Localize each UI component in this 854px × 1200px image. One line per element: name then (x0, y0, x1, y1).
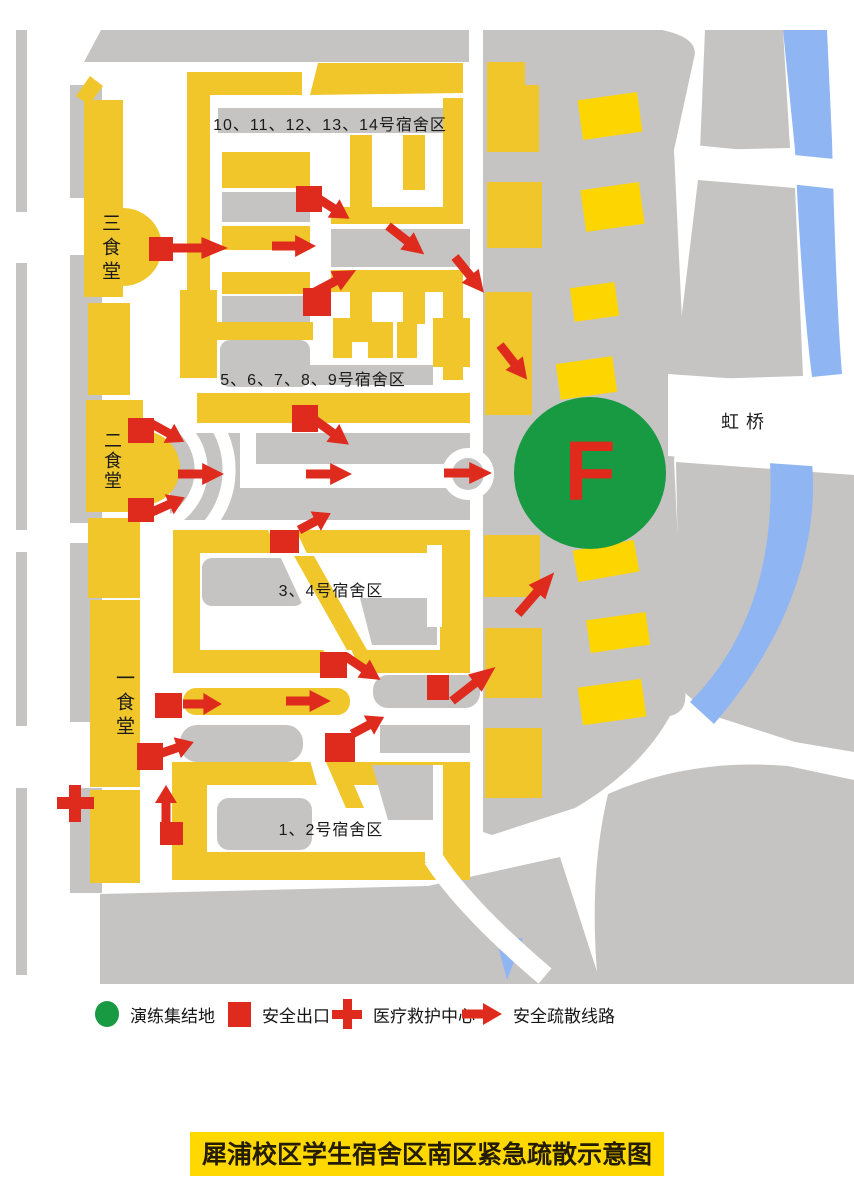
evacuation-arrow-icon (462, 1003, 502, 1025)
medical-cross-icon (332, 999, 362, 1029)
exit-marker (270, 530, 299, 553)
exit-marker (149, 237, 173, 261)
dorm-3-4-label: 3、4号宿舍区 (279, 577, 384, 601)
dorm-5-9-label: 5、6、7、8、9号宿舍区 (220, 366, 406, 390)
canteen-3-label: 三食堂 (96, 213, 123, 285)
right-panel-top (700, 30, 790, 150)
exit-marker (292, 405, 318, 432)
legend-item-exit: 安全出口 (228, 999, 330, 1029)
exit-marker (155, 693, 182, 718)
canteen-buildings (76, 76, 180, 883)
right-panel-mid (674, 180, 803, 380)
exit-marker (427, 675, 449, 700)
map-canvas (0, 0, 854, 985)
bottom-right-region (595, 765, 854, 984)
legend-label: 安全疏散线路 (513, 1002, 615, 1027)
bridge-label: 虹桥 (721, 408, 771, 434)
exit-square-icon (228, 1002, 251, 1027)
legend-label: 演练集结地 (130, 1002, 215, 1027)
canteen-1-label: 一食堂 (110, 668, 137, 740)
legend-item-route: 安全疏散线路 (462, 999, 615, 1029)
assembly-circle-icon (95, 1001, 119, 1027)
legend-item-medical: 医疗救护中心 (332, 999, 475, 1029)
canteen-2-label: 二食堂 (99, 431, 125, 491)
dorm-10-14-label: 10、11、12、13、14号宿舍区 (213, 111, 447, 135)
dorm-block-3-4 (173, 530, 470, 673)
evacuation-map-page: 10、11、12、13、14号宿舍区 5、6、7、8、9号宿舍区 3、4号宿舍区… (0, 0, 854, 1200)
exit-marker (160, 822, 183, 845)
exit-marker (128, 498, 154, 522)
legend-label: 安全出口 (262, 1002, 330, 1027)
legend-item-assembly: 演练集结地 (95, 999, 215, 1029)
assembly-point-letter: F (564, 429, 615, 513)
exit-marker (137, 743, 163, 770)
exit-marker (128, 418, 154, 443)
exit-marker (325, 733, 355, 762)
exit-marker (320, 652, 347, 678)
legend-label: 医疗救护中心 (373, 1002, 475, 1027)
dorm-1-2-label: 1、2号宿舍区 (279, 816, 384, 840)
map-title: 犀浦校区学生宿舍区南区紧急疏散示意图 (190, 1132, 664, 1176)
top-road-bar (84, 30, 469, 62)
